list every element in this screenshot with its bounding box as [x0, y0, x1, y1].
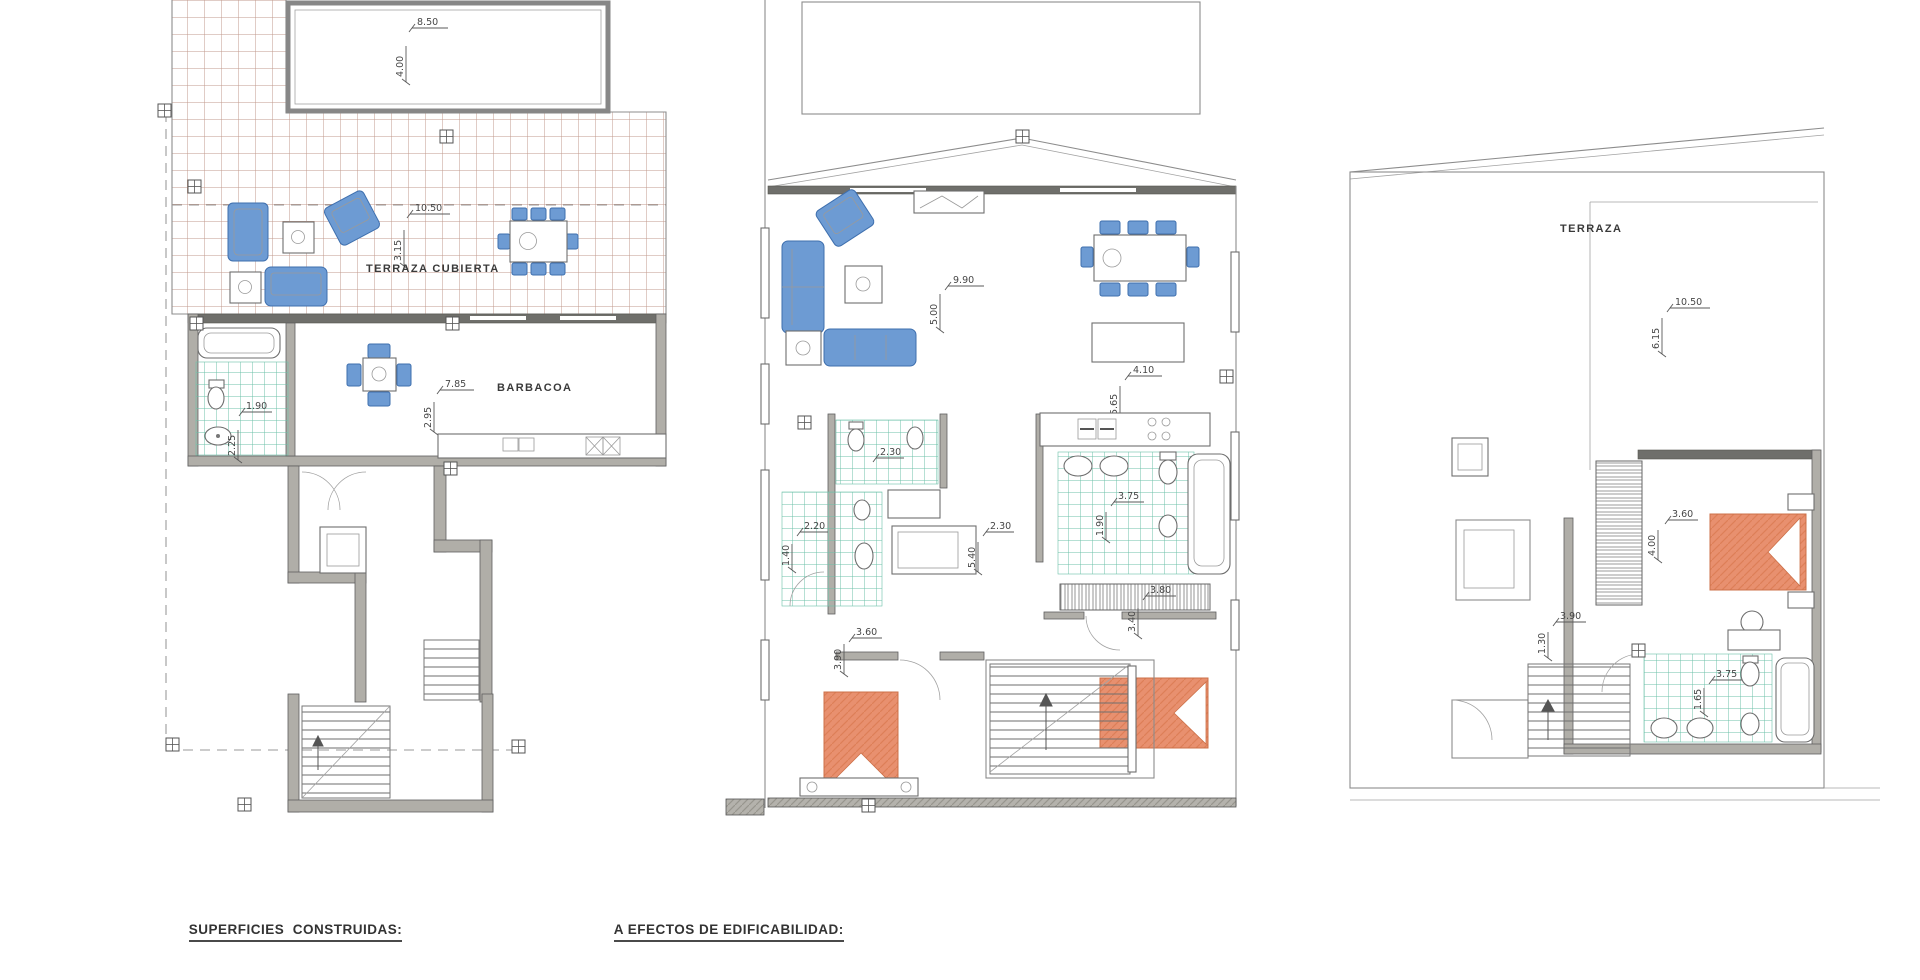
bidet: [1159, 515, 1177, 537]
pool-above: [802, 2, 1200, 114]
closet: [892, 526, 976, 574]
dim-terraza3-height: 6.15: [1651, 318, 1666, 357]
svg-text:3.60: 3.60: [856, 627, 877, 638]
dim-dorm3-height: 4.00: [1647, 530, 1662, 563]
svg-text:3.40: 3.40: [1127, 611, 1138, 632]
svg-text:4.00: 4.00: [395, 56, 406, 77]
wardrobe: [1060, 584, 1210, 610]
bano-b: 2.20 1.40: [781, 490, 976, 606]
svg-text:3.75: 3.75: [1716, 669, 1737, 680]
svg-text:2.25: 2.25: [227, 435, 238, 456]
dim-cocina-width: 4.10: [1125, 365, 1162, 380]
svg-text:3.60: 3.60: [1672, 509, 1693, 520]
dresser: [1728, 630, 1780, 650]
dim-salon-baja-height: 5.00: [929, 294, 944, 333]
stairs-upper: [424, 640, 479, 700]
dim-dorm1-height: 3.90: [833, 644, 848, 677]
svg-text:5.40: 5.40: [967, 547, 978, 568]
svg-text:5.65: 5.65: [1109, 394, 1120, 415]
svg-text:3.80: 3.80: [1150, 585, 1171, 596]
bench: [800, 778, 918, 796]
terraza-cubierta-label: TERRAZA CUBIERTA: [366, 263, 500, 275]
svg-text:8.50: 8.50: [417, 17, 438, 28]
svg-text:3.75: 3.75: [1118, 491, 1139, 502]
ground-line: [1350, 788, 1880, 800]
side-table: [786, 331, 821, 365]
toilet: [848, 429, 864, 451]
dining-set: [1081, 221, 1199, 296]
sink: [1687, 718, 1713, 738]
nightstand: [1788, 494, 1814, 510]
svg-text:1.90: 1.90: [246, 401, 267, 412]
floorplan-sheet: 8.50 4.00 10.50 3.15: [0, 0, 1920, 980]
bidet: [1741, 713, 1759, 735]
living-furniture: [782, 188, 916, 366]
nightstand: [1788, 592, 1814, 608]
side-table: [845, 266, 882, 303]
semisotano-stairs: [288, 466, 493, 812]
svg-text:1.40: 1.40: [781, 545, 792, 566]
svg-text:2.20: 2.20: [804, 521, 825, 532]
kitchen-counter: [438, 434, 666, 458]
baja-roof: [768, 138, 1236, 187]
terraza-label: TERRAZA: [1560, 223, 1622, 235]
primera-stairs: [1528, 654, 1640, 756]
svg-text:5.00: 5.00: [929, 304, 940, 325]
table-set: [347, 344, 411, 406]
svg-text:6.15: 6.15: [1651, 328, 1662, 349]
svg-text:3.15: 3.15: [393, 240, 404, 261]
svg-text:10.50: 10.50: [1675, 297, 1702, 308]
primera-roof: [1350, 128, 1824, 179]
skylight: [1452, 438, 1488, 476]
svg-text:1.65: 1.65: [1693, 689, 1704, 710]
svg-text:3.90: 3.90: [1560, 611, 1581, 622]
dim-dorm1-width: 3.60: [849, 627, 882, 642]
side-table: [230, 272, 261, 303]
sink: [1064, 456, 1092, 476]
kitchen: 4.10 5.65: [1040, 323, 1210, 446]
edificabilidad-title: A EFECTOS DE EDIFICABILIDAD:: [614, 922, 844, 942]
plan-semisotano: 8.50 4.00 10.50 3.15: [158, 0, 666, 812]
bathtub: [1776, 658, 1814, 742]
dim-salon-width: 7.85: [437, 379, 474, 394]
sofa-horizontal: [824, 329, 916, 366]
bathtub: [198, 328, 280, 358]
superficies-title: SUPERFICIES CONSTRUIDAS:: [189, 922, 403, 942]
edificabilidad-table: A EFECTOS DE EDIFICABILIDAD: PLANTA SEMI…: [596, 903, 998, 980]
dim-pasillo-width: 2.30: [983, 521, 1014, 536]
bano-c: 3.75 1.90: [1058, 452, 1230, 574]
semisotano-bathroom: 1.90 2.25: [196, 328, 288, 463]
sink: [855, 543, 873, 569]
bano-principal: 3.75 1.65: [1644, 654, 1814, 742]
svg-text:4.00: 4.00: [1647, 535, 1658, 556]
dormitorio-principal: 3.60 4.00: [1647, 494, 1814, 650]
bidet: [907, 427, 923, 449]
barbacoa-label: BARBACOA: [497, 382, 572, 394]
sink: [1651, 718, 1677, 738]
svg-text:1.30: 1.30: [1537, 633, 1548, 654]
baja-stairs: [986, 660, 1154, 778]
toilet: [854, 500, 870, 520]
svg-text:10.50: 10.50: [415, 203, 442, 214]
pool: [288, 3, 608, 111]
barbacoa-room: 7.85 2.95 BARBACOA: [347, 344, 666, 458]
dim-dorm3-width: 3.60: [1665, 509, 1698, 524]
svg-text:2.95: 2.95: [423, 407, 434, 428]
svg-text:2.30: 2.30: [880, 447, 901, 458]
column-marker: [1632, 644, 1645, 657]
closet: [888, 490, 940, 518]
kitchen-counter: [1040, 413, 1210, 446]
fireplace: [914, 191, 984, 213]
svg-text:3.90: 3.90: [833, 649, 844, 670]
dim-salon-baja-width: 9.90: [945, 275, 984, 290]
sink: [1100, 456, 1128, 476]
side-table: [283, 222, 314, 253]
dim-salon-height: 2.95: [423, 402, 438, 435]
plan-baja: 9.90 5.00 4.10: [726, 0, 1239, 815]
svg-text:9.90: 9.90: [953, 275, 974, 286]
floorplan-drawing: 8.50 4.00 10.50 3.15: [0, 0, 1920, 868]
svg-text:1.90: 1.90: [1095, 515, 1106, 536]
bano-a: 2.30: [836, 420, 938, 484]
superficies-table: SUPERFICIES CONSTRUIDAS: VIVIENDA PLANTA…: [171, 903, 560, 980]
dim-terraza3-width: 10.50: [1667, 297, 1710, 312]
svg-text:2.30: 2.30: [990, 521, 1011, 532]
armchair-rotated: [814, 188, 875, 248]
plan-primera: TERRAZA 10.50 6.15: [1350, 128, 1880, 800]
terraza-inner-edge: [1590, 202, 1818, 470]
wardrobe: [1596, 461, 1642, 605]
toilet: [1741, 662, 1759, 686]
toilet: [1159, 460, 1177, 484]
svg-text:4.10: 4.10: [1133, 365, 1154, 376]
svg-text:7.85: 7.85: [445, 379, 466, 390]
dim-pasillo3-height: 1.30: [1537, 632, 1552, 661]
kitchen-island: [1092, 323, 1184, 362]
